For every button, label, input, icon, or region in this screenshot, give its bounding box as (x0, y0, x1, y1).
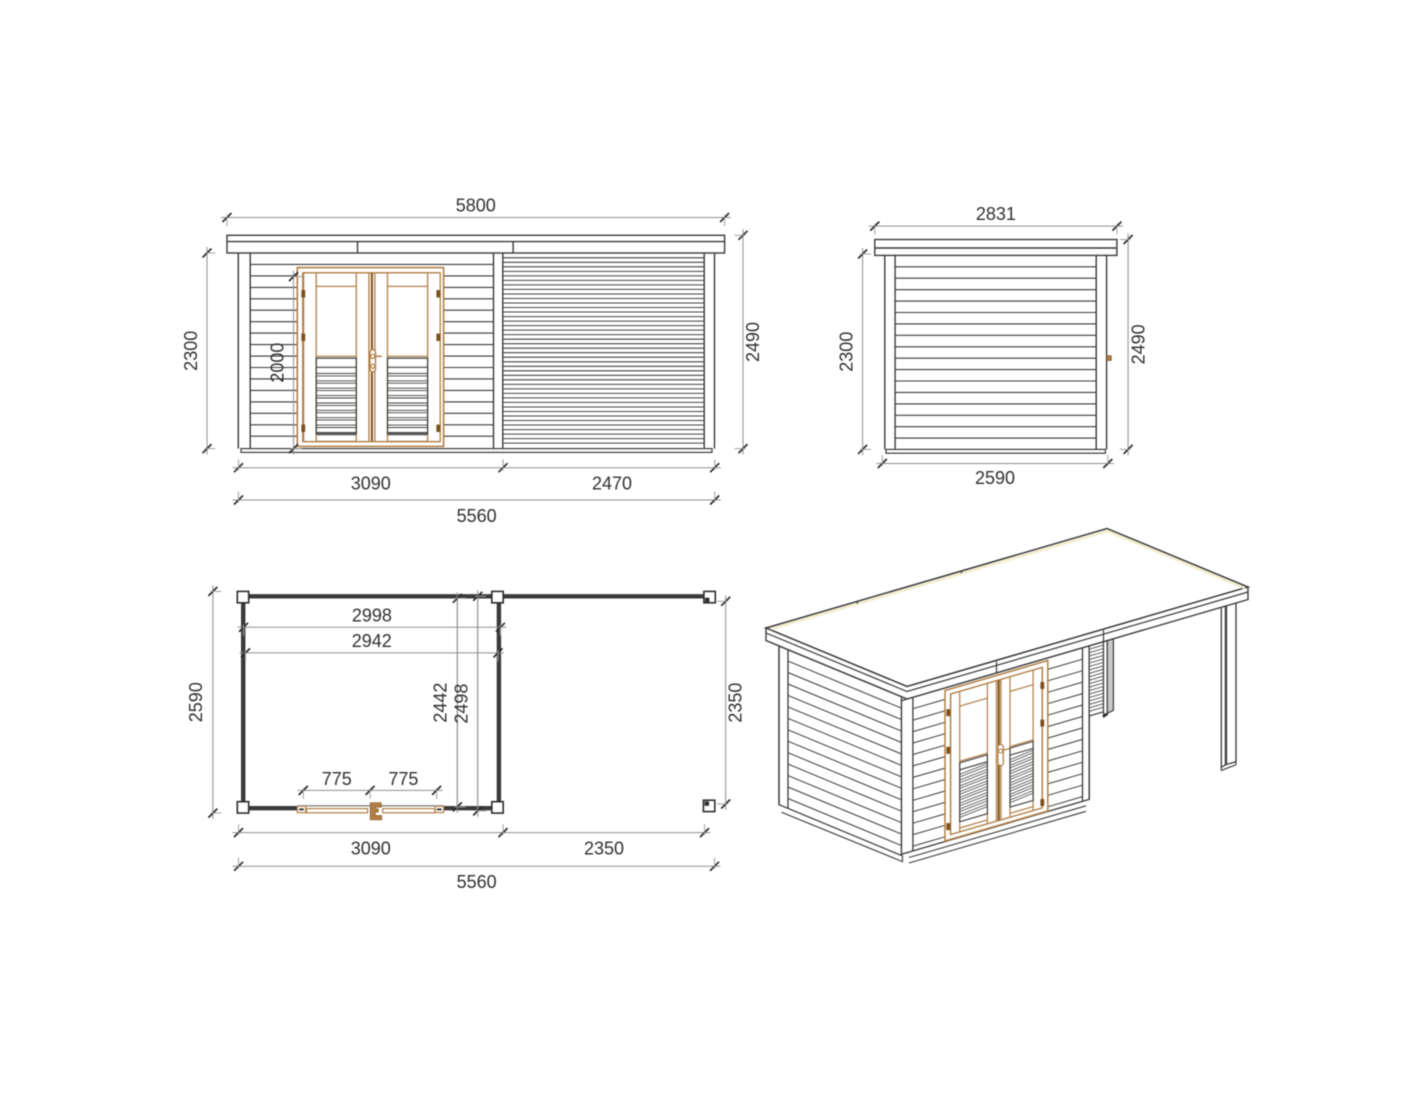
svg-text:3090: 3090 (351, 838, 391, 858)
svg-text:2442: 2442 (430, 683, 450, 723)
svg-text:2350: 2350 (726, 683, 746, 723)
svg-text:2300: 2300 (837, 332, 857, 372)
svg-text:2942: 2942 (352, 631, 392, 651)
svg-text:2000: 2000 (268, 343, 288, 383)
svg-text:2350: 2350 (584, 838, 624, 858)
svg-text:2470: 2470 (592, 474, 632, 494)
svg-text:2490: 2490 (1129, 324, 1149, 364)
svg-text:5560: 5560 (457, 872, 497, 892)
svg-text:775: 775 (322, 769, 352, 789)
svg-text:2590: 2590 (186, 682, 206, 722)
svg-text:5560: 5560 (457, 506, 497, 526)
svg-text:2998: 2998 (352, 605, 392, 625)
svg-text:2831: 2831 (976, 204, 1016, 224)
svg-text:5800: 5800 (456, 196, 496, 216)
svg-text:2590: 2590 (975, 468, 1015, 488)
svg-text:2490: 2490 (743, 322, 763, 362)
svg-text:3090: 3090 (351, 474, 391, 494)
svg-text:2498: 2498 (451, 684, 471, 724)
svg-text:775: 775 (388, 769, 418, 789)
svg-text:2300: 2300 (181, 331, 201, 371)
